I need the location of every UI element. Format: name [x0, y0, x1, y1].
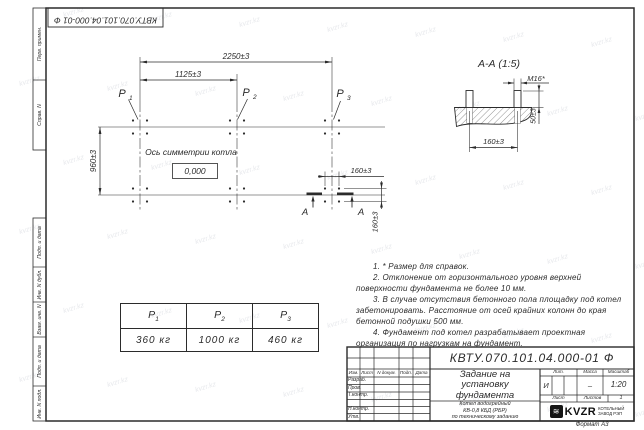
section-view: А-А (1:5) М16* 50±3 160±3 — [455, 58, 550, 152]
strip-label-podp-data-1: Подп. и дата — [37, 226, 43, 259]
loads-table-value-row: 360 кг 1000 кг 460 кг — [121, 329, 319, 352]
anchor-stud-left — [466, 91, 473, 108]
loads-header-p1: P1 — [121, 304, 187, 329]
technical-notes: 1. * Размер для справок. 2. Отклонение о… — [356, 261, 634, 349]
tb-lit-value: И — [540, 376, 552, 395]
tb-scale-value: 1:20 — [603, 376, 634, 395]
anchor-bolts — [132, 119, 340, 202]
loads-header-p3: P3 — [253, 304, 319, 329]
company-logo-block: ≋ KVZR КОТЕЛЬНЫЙ ЗАВОД РЭП — [540, 402, 634, 421]
kvzr-logo-icon: ≋ — [550, 405, 563, 418]
tb-lit-label: Лит. — [540, 369, 577, 376]
strip-label-vzam-inv: Взам. инв. N — [37, 304, 43, 334]
dim-bolt-x: 160±3 — [351, 166, 373, 175]
section-cut-marks: А А — [301, 194, 364, 218]
load-label-p1: P — [118, 88, 126, 100]
tb-row-razrab: Разраб. — [348, 377, 374, 385]
tb-col-list: Лист — [360, 369, 374, 377]
doc-number-top-rotated: КВТУ.070.101.04.000-01 Ф — [54, 16, 157, 26]
tb-col-ndokum: N докум. — [374, 369, 399, 377]
tb-sheet-label: Лист — [540, 395, 577, 402]
loads-header-p2: P2 — [187, 304, 253, 329]
section-letter-left: А — [301, 207, 308, 218]
note-3: 3. В случае отсутствия бетонного пола пл… — [356, 294, 634, 327]
company-name: КОТЕЛЬНЫЙ ЗАВОД РЭП — [598, 407, 624, 417]
plan-view: P 1 P 2 P 3 2250±3 1125±3 960±3 160±3 16… — [89, 52, 387, 232]
tb-col-izm: Изм. — [347, 369, 360, 377]
elevation-mark: 0,000 — [184, 166, 206, 176]
dim-thread: М16* — [527, 74, 546, 83]
note-1: 1. * Размер для справок. — [356, 261, 634, 272]
dim-protrusion: 50±3 — [531, 108, 538, 124]
load-label-p2: P — [242, 87, 250, 99]
load-label-p3-sub: 3 — [347, 95, 351, 102]
section-title: А-А (1:5) — [477, 58, 520, 70]
tb-row-prov: Пров. — [348, 385, 374, 393]
load-label-p3: P — [336, 88, 344, 100]
drawing-title: Задание на установку фундамента — [430, 370, 540, 401]
frame-strip-labels: Перв. примен. Справ. N Подп. и дата Инв.… — [37, 16, 157, 419]
load-label-p1-sub: 1 — [129, 95, 133, 102]
strip-label-podp-data-2: Подп. и дата — [37, 345, 43, 378]
loads-table: P1 P2 P3 360 кг 1000 кг 460 кг — [120, 303, 319, 352]
loads-value-p3: 460 кг — [253, 329, 319, 352]
drawing-sheet: { "frame": { "doc_number_top": "КВТУ.070… — [0, 0, 644, 430]
tb-sheets-value: 1 — [608, 395, 634, 402]
tb-col-data: Дата — [413, 369, 430, 377]
loads-value-p2: 1000 кг — [187, 329, 253, 352]
dim-spacing: 160±3 — [483, 137, 505, 146]
loads-table-header-row: P1 P2 P3 — [121, 304, 319, 329]
tb-sheets-label: Листов — [577, 395, 608, 402]
axis-label: Ось симметрии котла — [145, 147, 237, 157]
tb-col-podp: Подп. — [399, 369, 413, 377]
tb-row-tkontr: Т.контр. — [348, 392, 374, 400]
anchor-stud-right — [514, 91, 521, 108]
tb-mass-label: Масса — [577, 369, 603, 376]
format-label: Формат А3 — [552, 422, 632, 430]
dim-overall: 2250±3 — [222, 52, 250, 61]
strip-label-inv-podl: Инв. N подл. — [37, 388, 43, 418]
note-4: 4. Фундамент под котел разрабатывает про… — [356, 327, 634, 349]
dim-bolt-y: 160±3 — [371, 211, 380, 233]
section-letter-right: А — [357, 207, 364, 218]
dim-depth: 960±3 — [89, 149, 98, 172]
dim-half: 1125±3 — [175, 70, 202, 79]
strip-label-sprav-n: Справ. N — [37, 104, 43, 126]
tb-row-utv: Утв. — [348, 414, 374, 422]
loads-value-p1: 360 кг — [121, 329, 187, 352]
tb-row-nkontr: Н.контр. — [348, 407, 374, 414]
kvzr-logo-text: KVZR — [565, 406, 597, 418]
strip-label-perv-primen: Перв. примен. — [37, 27, 43, 61]
tb-scale-label: Масштаб — [603, 369, 634, 376]
strip-label-inv-dubl: Инв. N дубл. — [37, 269, 43, 299]
title-block-doc-number: КВТУ.070.101.04.000-01 Ф — [430, 347, 634, 369]
note-2: 2. Отклонение от горизонтального уровня … — [356, 272, 634, 294]
product-name: Котел водогрейный КВ-0,8 КБД (РБР) по те… — [430, 401, 540, 421]
load-label-p2-sub: 2 — [252, 94, 257, 101]
tb-mass-value: – — [577, 376, 603, 395]
